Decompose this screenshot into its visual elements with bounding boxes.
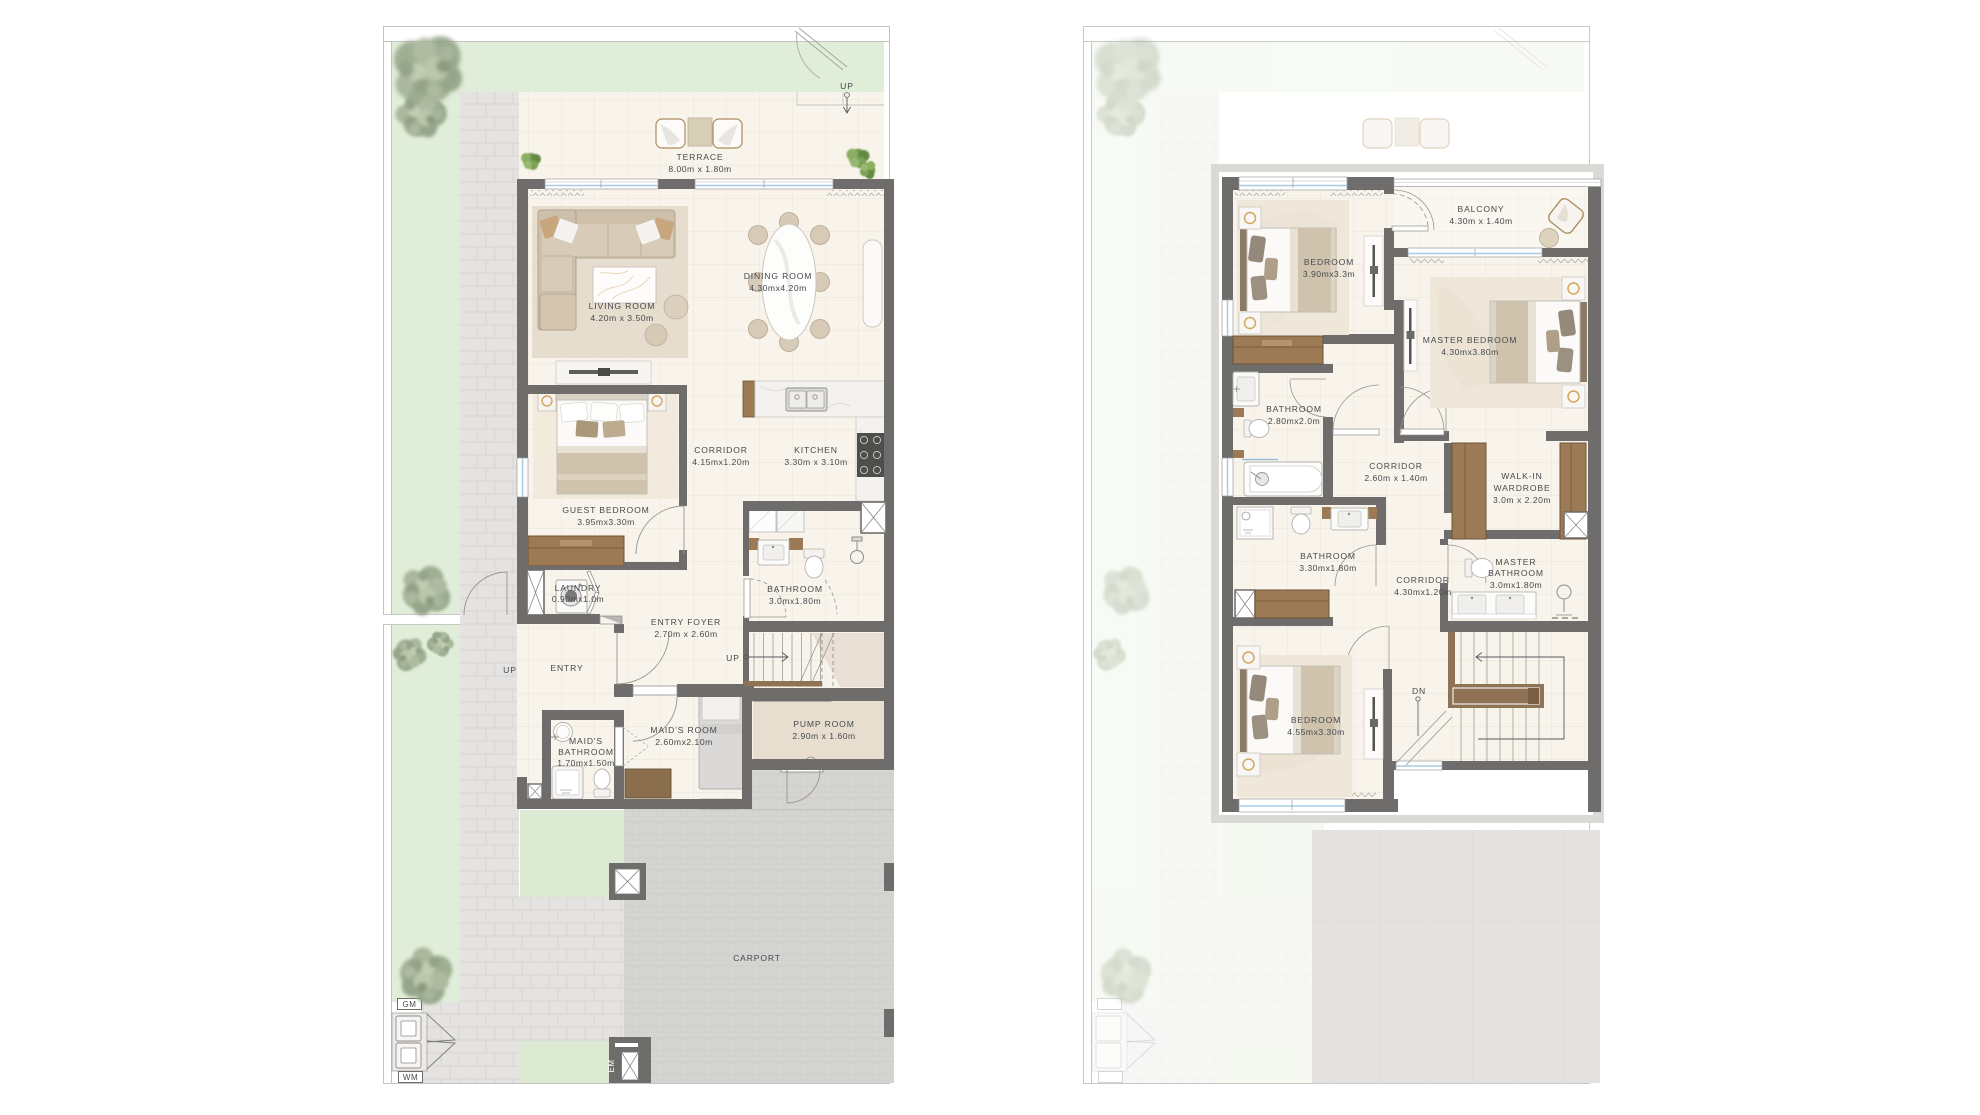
svg-text:ENTRY: ENTRY	[550, 663, 583, 673]
svg-text:WM: WM	[403, 1073, 418, 1082]
svg-text:BATHROOM: BATHROOM	[1300, 551, 1356, 561]
svg-text:CORRIDOR: CORRIDOR	[1396, 575, 1450, 585]
svg-text:MASTER: MASTER	[1496, 557, 1537, 567]
svg-text:1.70mx1.50m: 1.70mx1.50m	[557, 758, 615, 768]
svg-text:4.15mx1.20m: 4.15mx1.20m	[692, 457, 750, 467]
svg-text:4.30mx4.20m: 4.30mx4.20m	[749, 283, 807, 293]
svg-text:CORRIDOR: CORRIDOR	[694, 445, 748, 455]
svg-text:2.80mx2.0m: 2.80mx2.0m	[1268, 416, 1320, 426]
svg-text:KITCHEN: KITCHEN	[794, 445, 838, 455]
svg-text:CARPORT: CARPORT	[733, 953, 781, 963]
svg-text:LIVING ROOM: LIVING ROOM	[589, 301, 656, 311]
svg-text:WALK-IN: WALK-IN	[1501, 471, 1542, 481]
svg-text:BATHROOM: BATHROOM	[1266, 404, 1322, 414]
svg-text:DINING ROOM: DINING ROOM	[744, 271, 813, 281]
svg-text:UP: UP	[503, 665, 517, 675]
svg-text:4.20m x 3.50m: 4.20m x 3.50m	[590, 313, 653, 323]
svg-text:2.60m x 1.40m: 2.60m x 1.40m	[1364, 473, 1427, 483]
svg-text:2.60mx2.10m: 2.60mx2.10m	[655, 737, 713, 747]
svg-text:3.0m x 2.20m: 3.0m x 2.20m	[1493, 495, 1551, 505]
svg-text:3.30mx1.80m: 3.30mx1.80m	[1299, 563, 1357, 573]
svg-text:BEDROOM: BEDROOM	[1304, 257, 1354, 267]
svg-text:3.95mx3.30m: 3.95mx3.30m	[577, 517, 635, 527]
svg-text:BALCONY: BALCONY	[1457, 204, 1504, 214]
svg-text:MASTER BEDROOM: MASTER BEDROOM	[1423, 335, 1518, 345]
svg-text:EM: EM	[607, 1060, 616, 1073]
svg-text:GM: GM	[403, 1000, 417, 1009]
svg-text:0.90mx1.0m: 0.90mx1.0m	[552, 594, 604, 604]
svg-text:4.30mx3.80m: 4.30mx3.80m	[1441, 347, 1499, 357]
svg-text:DN: DN	[1412, 686, 1426, 696]
svg-text:2.70m x 2.60m: 2.70m x 2.60m	[654, 629, 717, 639]
svg-text:LAUNDRY: LAUNDRY	[555, 583, 602, 593]
svg-text:UP: UP	[726, 653, 740, 663]
svg-text:UP: UP	[840, 81, 854, 91]
svg-text:8.00m x 1.80m: 8.00m x 1.80m	[668, 164, 731, 174]
svg-text:4.30m x 1.40m: 4.30m x 1.40m	[1449, 216, 1512, 226]
svg-text:CORRIDOR: CORRIDOR	[1369, 461, 1423, 471]
svg-text:3.90mx3.3m: 3.90mx3.3m	[1303, 269, 1355, 279]
svg-text:ENTRY FOYER: ENTRY FOYER	[651, 617, 721, 627]
svg-text:BATHROOM: BATHROOM	[1488, 568, 1544, 578]
svg-text:4.30mx1.20m: 4.30mx1.20m	[1394, 587, 1452, 597]
svg-text:2.90m x 1.60m: 2.90m x 1.60m	[792, 731, 855, 741]
svg-text:BATHROOM: BATHROOM	[767, 584, 823, 594]
svg-text:BATHROOM: BATHROOM	[558, 747, 614, 757]
svg-text:3.30m x 3.10m: 3.30m x 3.10m	[784, 457, 847, 467]
svg-text:3.0mx1.80m: 3.0mx1.80m	[769, 596, 821, 606]
svg-text:3.0mx1.80m: 3.0mx1.80m	[1490, 580, 1542, 590]
svg-text:WARDROBE: WARDROBE	[1493, 483, 1550, 493]
svg-text:4.55mx3.30m: 4.55mx3.30m	[1287, 727, 1345, 737]
svg-text:BEDROOM: BEDROOM	[1291, 715, 1341, 725]
svg-text:MAID'S ROOM: MAID'S ROOM	[650, 725, 717, 735]
svg-text:TERRACE: TERRACE	[676, 152, 723, 162]
svg-text:PUMP ROOM: PUMP ROOM	[793, 719, 854, 729]
svg-text:MAID'S: MAID'S	[569, 736, 603, 746]
svg-text:GUEST BEDROOM: GUEST BEDROOM	[562, 505, 649, 515]
